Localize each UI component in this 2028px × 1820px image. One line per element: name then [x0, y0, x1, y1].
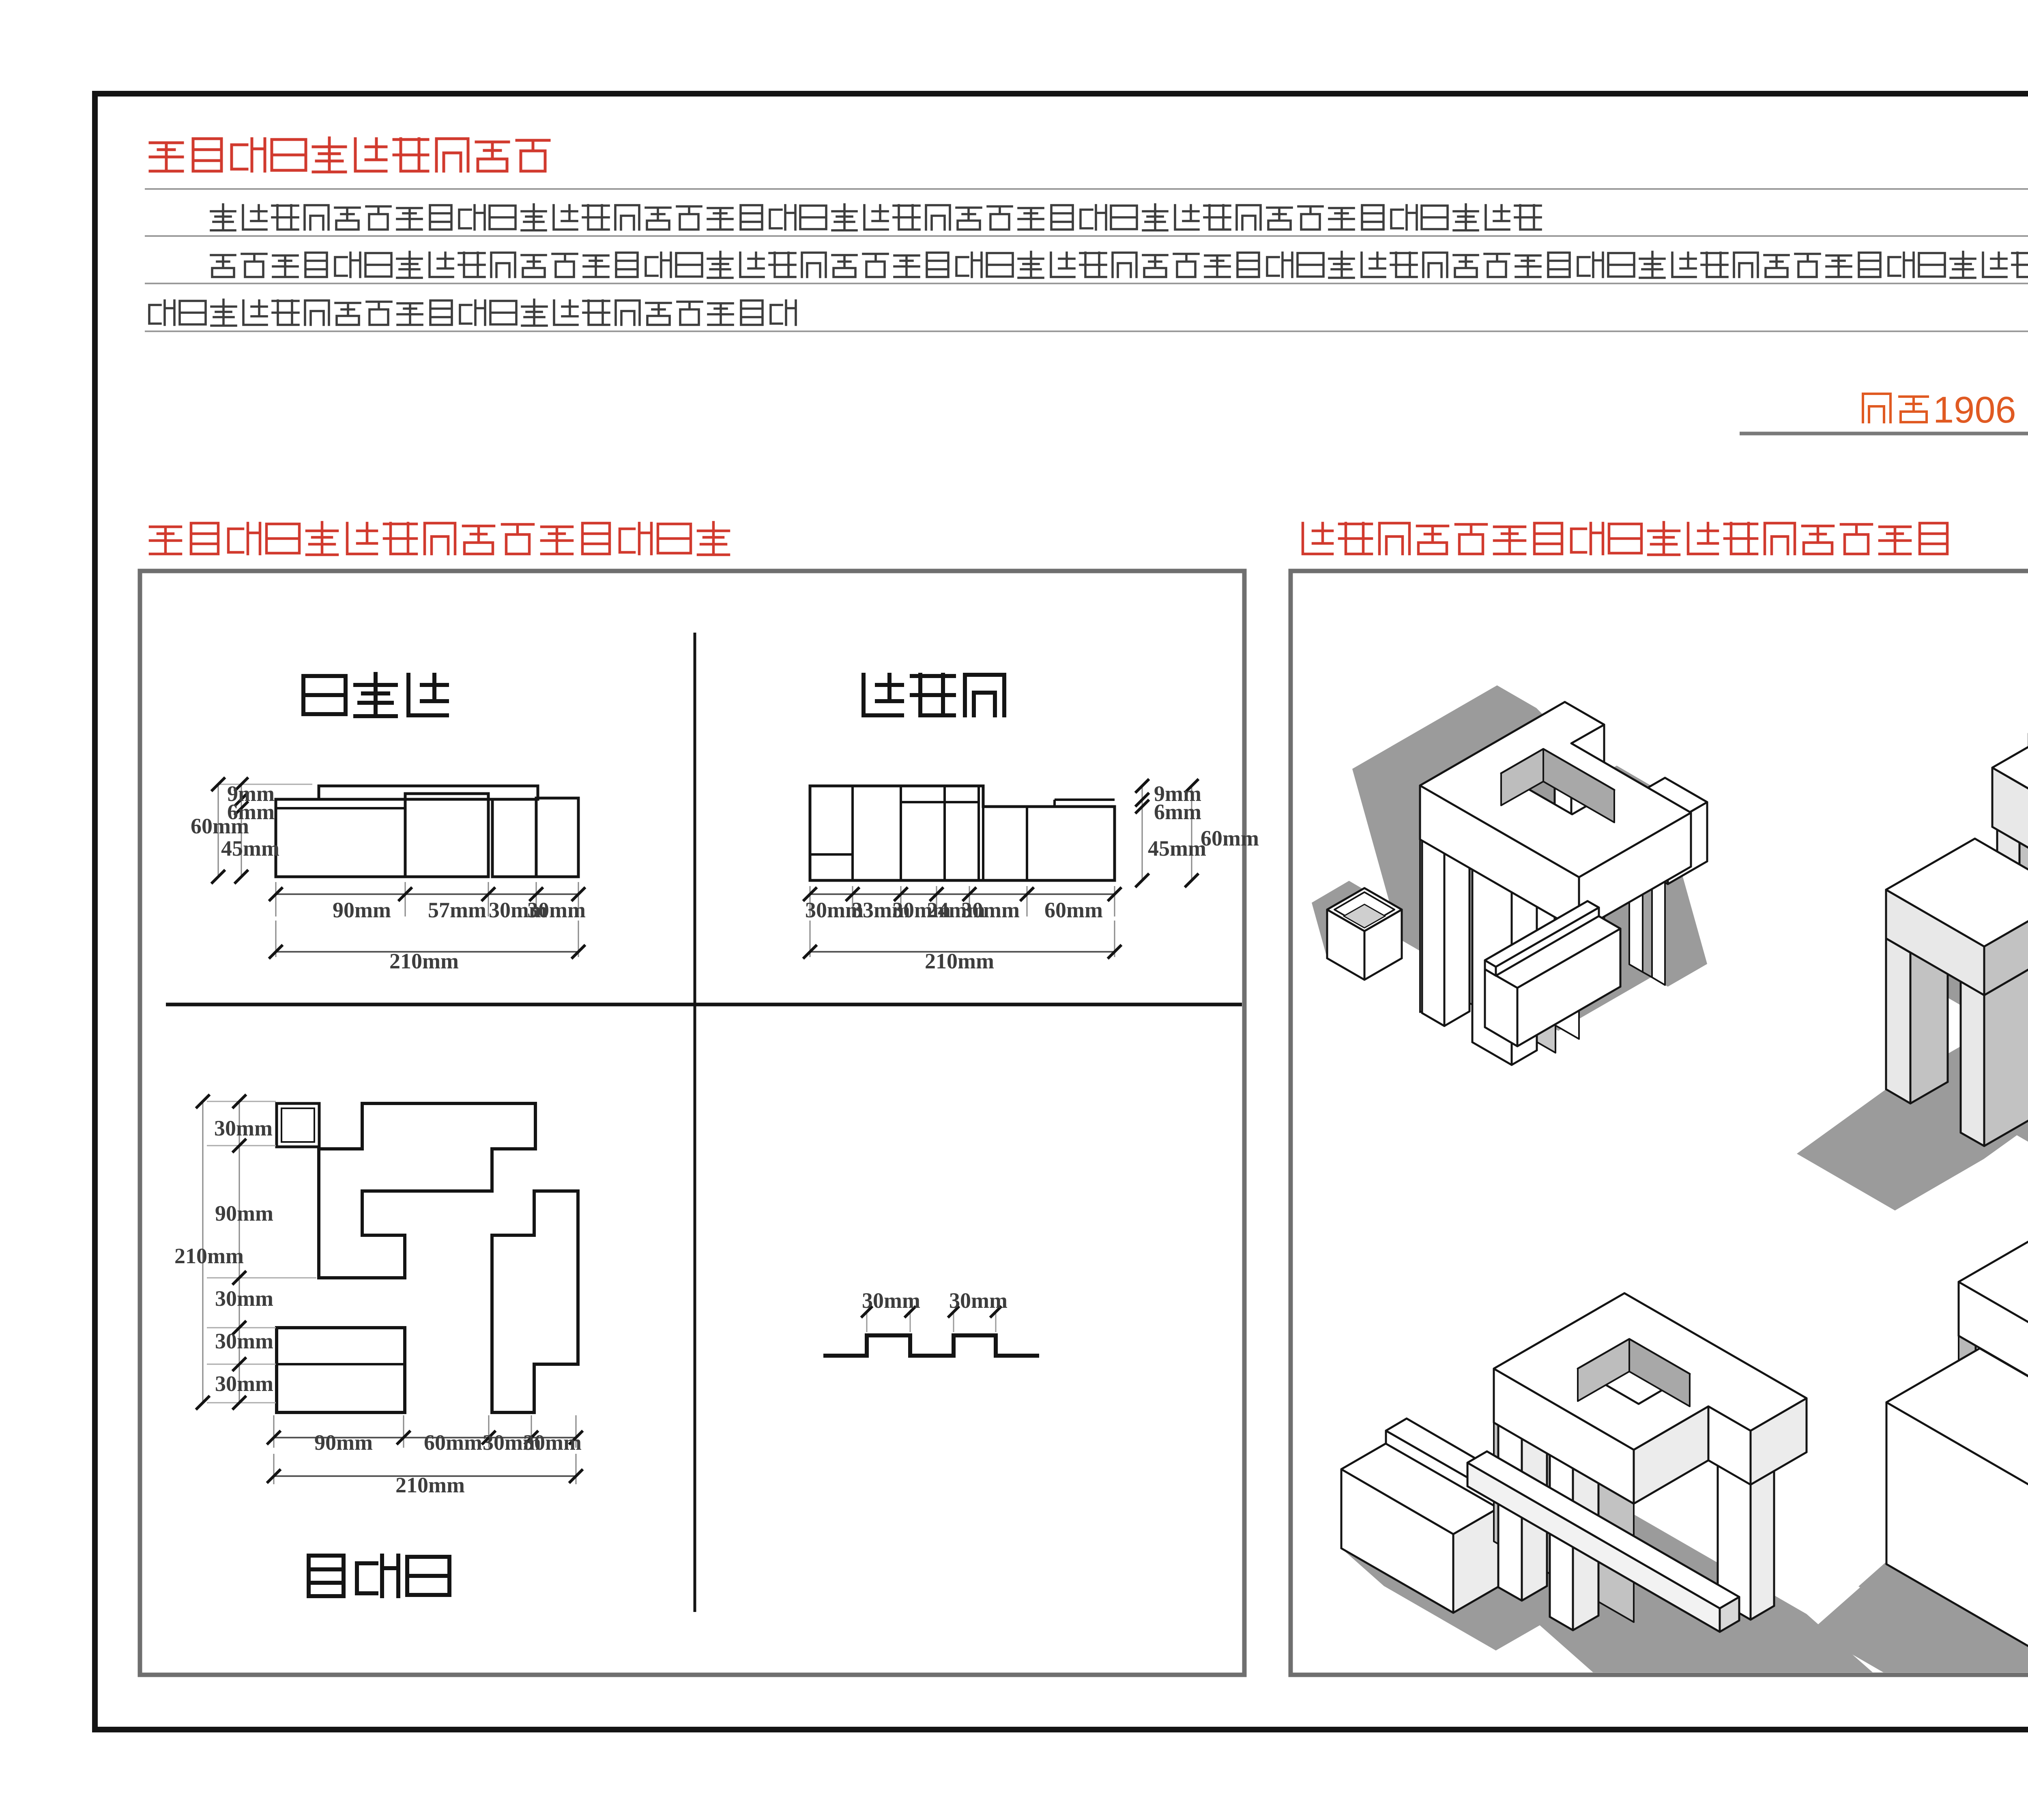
svg-text:60mm: 60mm [424, 1430, 482, 1455]
svg-text:30mm: 30mm [214, 1116, 273, 1140]
svg-text:30mm: 30mm [215, 1371, 273, 1396]
svg-text:210mm: 210mm [389, 949, 459, 973]
svg-text:45mm: 45mm [1148, 836, 1206, 861]
svg-text:57mm: 57mm [428, 898, 486, 922]
svg-text:90mm: 90mm [333, 898, 391, 922]
svg-text:1906: 1906 [1933, 389, 2016, 431]
svg-text:30mm: 30mm [215, 1329, 273, 1353]
svg-text:30mm: 30mm [527, 898, 586, 922]
svg-text:6mm: 6mm [1154, 800, 1201, 824]
svg-text:210mm: 210mm [395, 1473, 465, 1497]
svg-text:210mm: 210mm [174, 1244, 244, 1268]
svg-text:60mm: 60mm [1044, 898, 1103, 922]
svg-text:30mm: 30mm [523, 1430, 582, 1455]
svg-text:30mm: 30mm [862, 1288, 920, 1313]
svg-text:90mm: 90mm [215, 1201, 273, 1225]
svg-text:60mm: 60mm [191, 814, 249, 838]
svg-text:30mm: 30mm [961, 898, 1020, 922]
svg-text:30mm: 30mm [949, 1288, 1008, 1313]
svg-text:210mm: 210mm [925, 949, 994, 973]
svg-text:90mm: 90mm [314, 1430, 373, 1455]
svg-text:30mm: 30mm [215, 1286, 273, 1311]
svg-text:60mm: 60mm [1201, 826, 1259, 850]
svg-text:45mm: 45mm [221, 836, 279, 861]
